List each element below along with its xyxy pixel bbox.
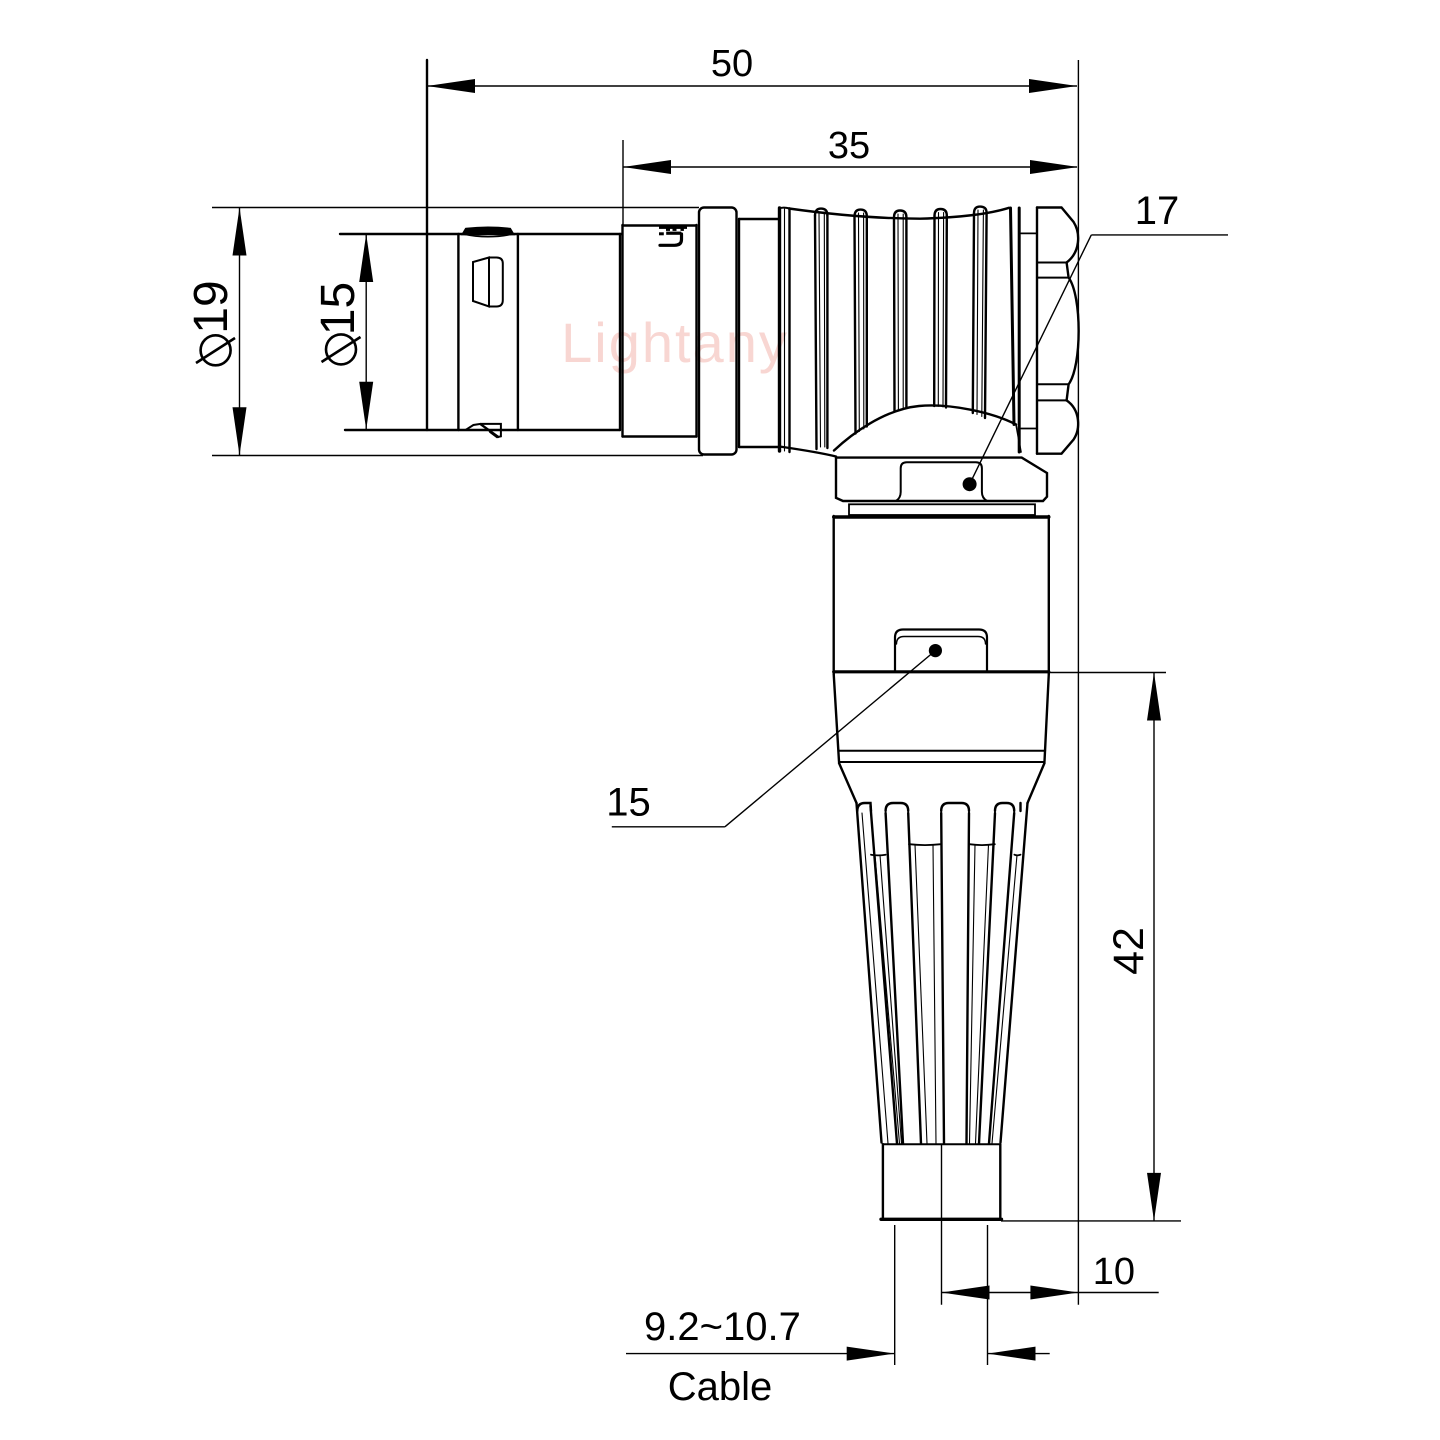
- svg-text:35: 35: [828, 125, 870, 167]
- svg-text:15: 15: [606, 781, 651, 825]
- svg-text:Lightany: Lightany: [561, 311, 789, 374]
- svg-text:17: 17: [1135, 189, 1180, 233]
- svg-text:42: 42: [1105, 927, 1153, 975]
- svg-text:10: 10: [1093, 1251, 1135, 1293]
- svg-text:9.2~10.7: 9.2~10.7: [644, 1305, 801, 1349]
- svg-text:15: 15: [312, 282, 365, 335]
- svg-text:19: 19: [185, 280, 238, 333]
- svg-text:Cable: Cable: [668, 1365, 773, 1409]
- svg-text:50: 50: [711, 43, 753, 85]
